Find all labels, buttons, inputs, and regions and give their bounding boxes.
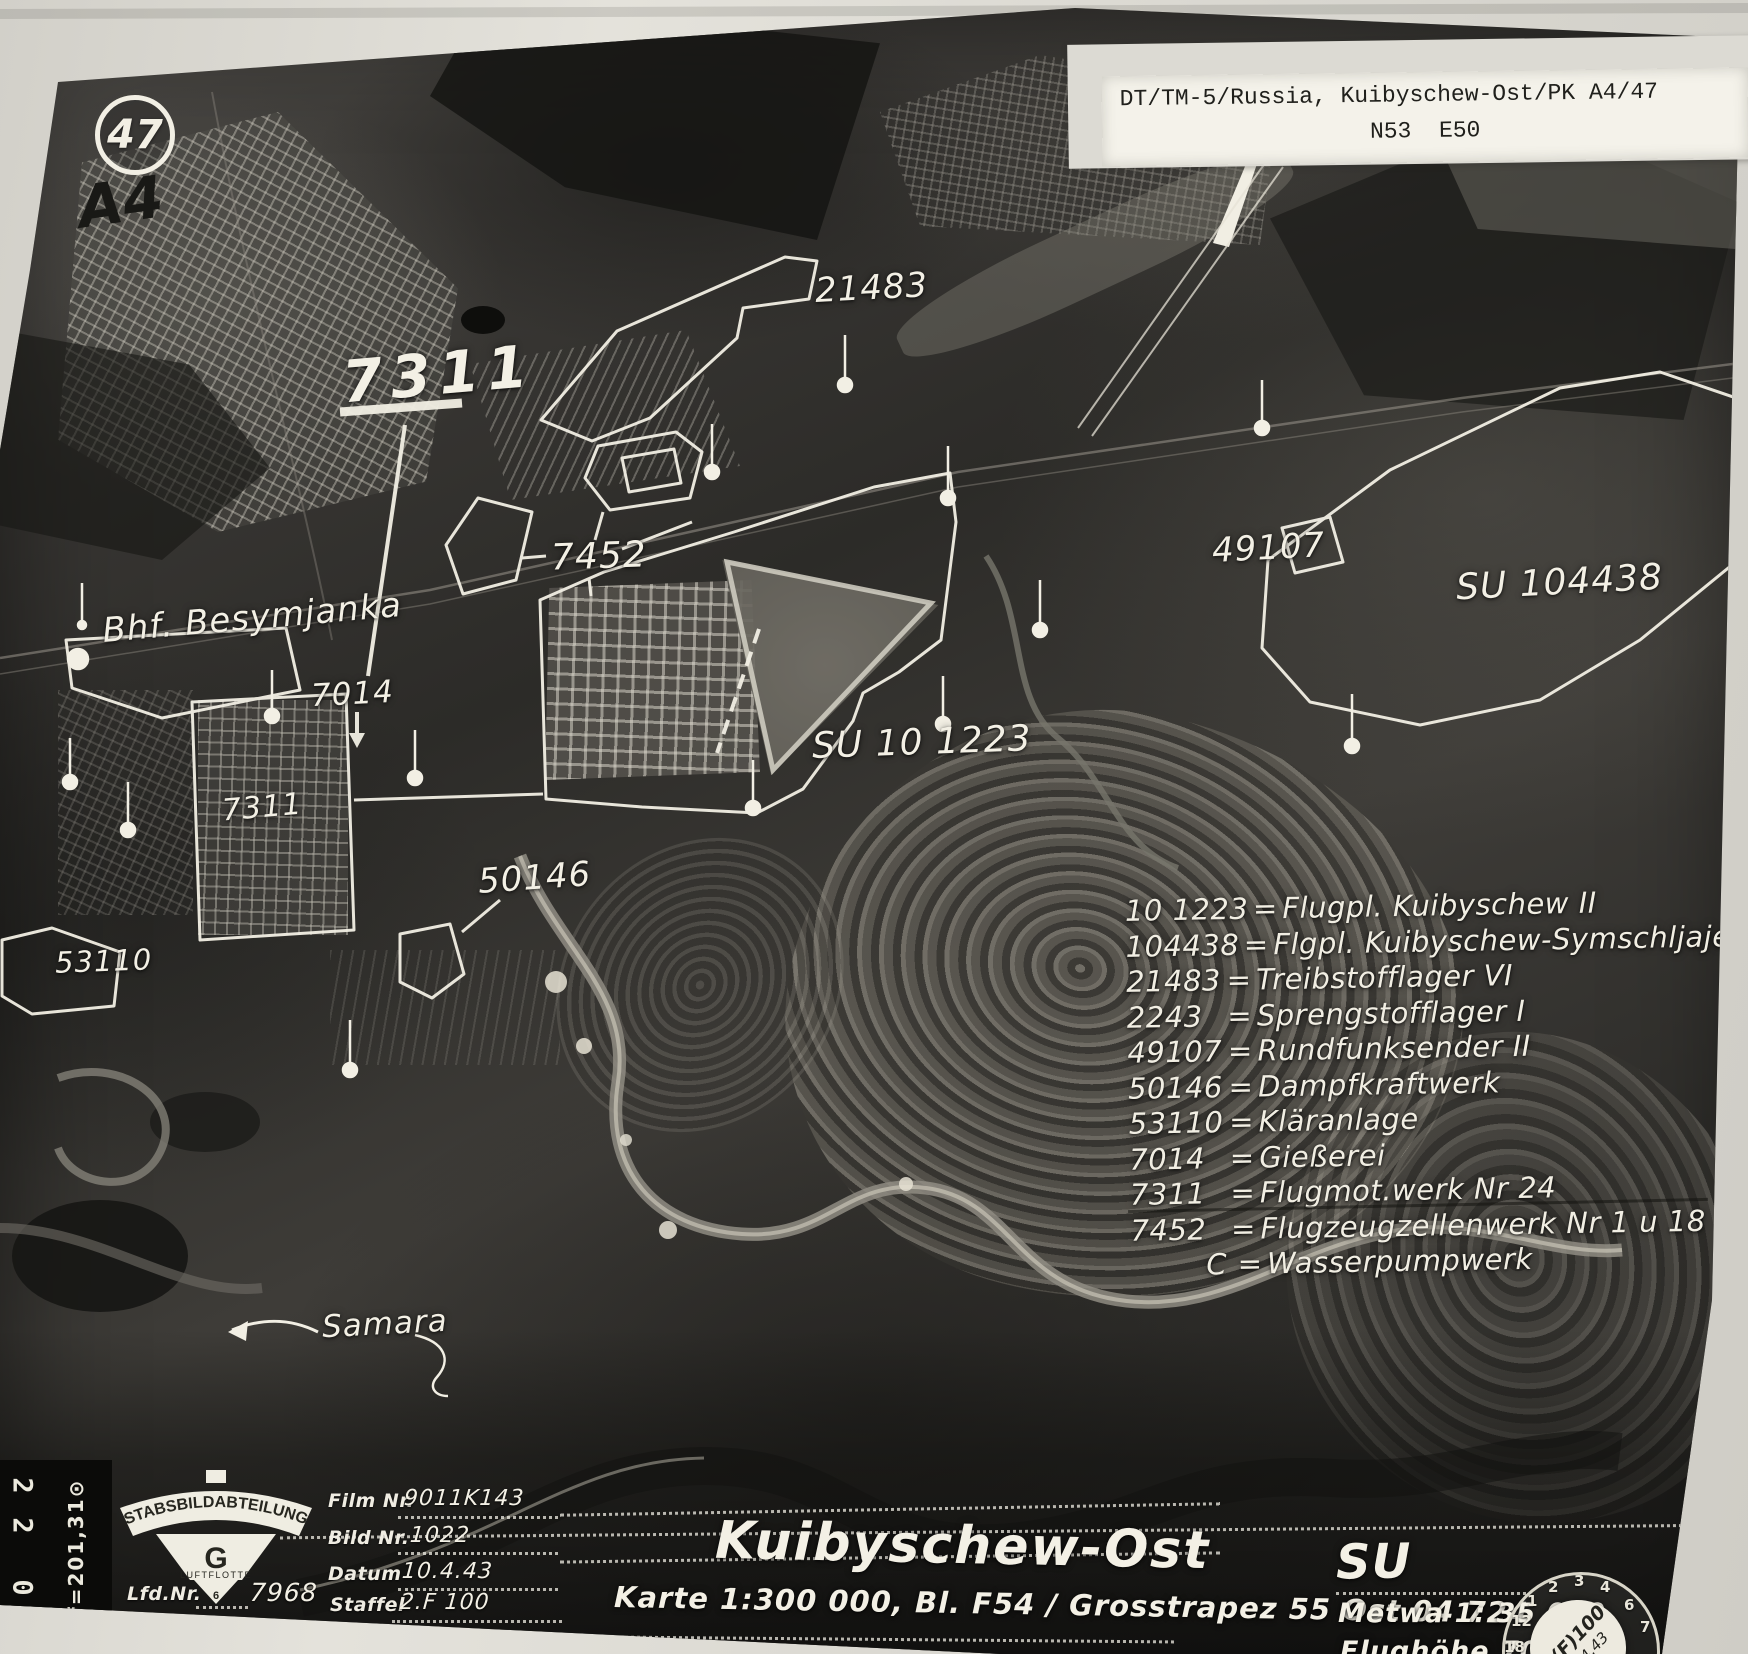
round-stamp-numeral: 18: [1504, 1638, 1525, 1654]
datum-label: Datum: [328, 1563, 402, 1585]
photo-title: Kuibyschew-Ost: [714, 1511, 1210, 1581]
photo-number-circle: 47: [95, 95, 175, 175]
legend-desc: Wasserpumpwerk: [1267, 1242, 1533, 1281]
pencil-mark-a4: A4: [74, 162, 168, 241]
dotted-rule: [196, 1606, 248, 1609]
legend-desc: Flugzeugzellenwerk Nr 1 u 18: [1260, 1203, 1706, 1245]
legend-code: 53110: [1128, 1105, 1225, 1141]
legend-code: 50146: [1128, 1070, 1225, 1106]
legend-desc: Flugpl. Kuibyschew II: [1282, 886, 1597, 925]
staffel-label: Staffel: [330, 1594, 405, 1616]
stamp-head-box: [206, 1470, 226, 1483]
stamp-luftflotte: LUFTFLOTTE: [180, 1570, 252, 1580]
legend-code: 104438: [1125, 927, 1239, 963]
archive-coordinates: N53 E50: [1102, 113, 1748, 148]
legend-desc: Kläranlage: [1258, 1102, 1419, 1139]
legend-code: 49107: [1127, 1034, 1224, 1070]
staffel-value: 2.F 100: [399, 1590, 490, 1615]
round-stamp-numeral: 2: [1548, 1578, 1558, 1596]
legend-equals: =: [1248, 891, 1283, 926]
map-label-7014: 7014: [310, 674, 395, 714]
legend-equals: =: [1223, 1034, 1258, 1069]
dotted-rule: [398, 1516, 558, 1519]
datum-value: 10.4.43: [401, 1559, 494, 1584]
dotted-rule: [392, 1620, 562, 1623]
recon-photo-scan: 47 A4 21483 7311 7452 Bhf. Besymjanka 70…: [0, 0, 1748, 1654]
legend-equals: =: [1224, 1069, 1259, 1104]
legend-equals: =: [1222, 998, 1257, 1033]
legend-equals: =: [1226, 1211, 1261, 1246]
film-nr-value: 9011K143: [403, 1486, 525, 1511]
map-label-su101223: SU 10 1223: [811, 718, 1032, 767]
legend-code: 21483: [1126, 963, 1223, 999]
legend-equals: =: [1233, 1246, 1268, 1281]
round-stamp-numeral: 3: [1574, 1572, 1584, 1590]
legend-equals: =: [1226, 1176, 1261, 1211]
legend-code: 2243: [1127, 999, 1224, 1035]
legend-code: 7014: [1129, 1141, 1226, 1177]
photo-overlay-graphics: [0, 0, 1748, 1654]
round-stamp-numeral: 7: [1640, 1618, 1650, 1636]
target-legend: 10 1223=Flugpl. Kuibyschew II 104438=Flg…: [1125, 882, 1748, 1284]
map-label-53110: 53110: [54, 942, 152, 979]
map-label-7311-small: 7311: [221, 787, 304, 829]
round-stamp-numeral: 1: [1527, 1592, 1537, 1610]
legend-desc: Sprengstofflager I: [1256, 993, 1525, 1032]
round-stamp-numeral: 4: [1600, 1578, 1610, 1596]
legend-equals: =: [1222, 963, 1257, 998]
legend-code: 7452: [1130, 1212, 1227, 1248]
legend-desc: Gießerei: [1259, 1138, 1386, 1174]
dotted-rule: [398, 1552, 558, 1555]
photo-number: 47: [107, 112, 163, 158]
lfd-nr-label: Lfd.Nr.: [127, 1583, 201, 1605]
legend-desc: Dampfkraftwerk: [1258, 1065, 1501, 1103]
legend-code: C: [1131, 1247, 1234, 1283]
archive-card: DT/TM-5/Russia, Kuibyschew-Ost/PK A4/47 …: [1101, 67, 1748, 166]
film-nr-label: Film Nr.: [328, 1490, 414, 1512]
lfd-nr-value: 7968: [249, 1578, 319, 1607]
film-edge-digit: 2: [7, 1517, 38, 1533]
focal-length-marking: f=201,31⊙: [64, 1466, 88, 1616]
stamp-number: 6: [213, 1590, 219, 1602]
legend-code: 7311: [1130, 1176, 1227, 1212]
legend-equals: =: [1225, 1140, 1260, 1175]
legend-equals: =: [1224, 1105, 1259, 1140]
map-label-7452: 7452: [550, 534, 647, 578]
map-label-49107: 49107: [1211, 525, 1326, 571]
film-edge-digit: 2: [7, 1477, 38, 1493]
legend-desc: Treibstofflager VI: [1256, 958, 1514, 996]
aerial-photo: 47 A4 21483 7311 7452 Bhf. Besymjanka 70…: [0, 0, 1748, 1654]
round-stamp-numeral: 6: [1624, 1596, 1634, 1614]
legend-equals: =: [1239, 927, 1274, 962]
archive-reference: DT/TM-5/Russia, Kuibyschew-Ost/PK A4/47: [1120, 79, 1659, 113]
country-code: SU: [1336, 1533, 1413, 1590]
film-edge-digit: 0: [7, 1579, 38, 1595]
dotted-rule: [398, 1588, 558, 1591]
map-label-50146: 50146: [477, 854, 593, 902]
legend-code: 10 1223: [1125, 892, 1249, 928]
legend-desc: Rundfunksender II: [1257, 1029, 1531, 1068]
map-label-samara-river: Samara: [321, 1303, 448, 1346]
map-label-21483: 21483: [814, 265, 929, 311]
round-stamp-numeral: 12: [1511, 1612, 1532, 1630]
